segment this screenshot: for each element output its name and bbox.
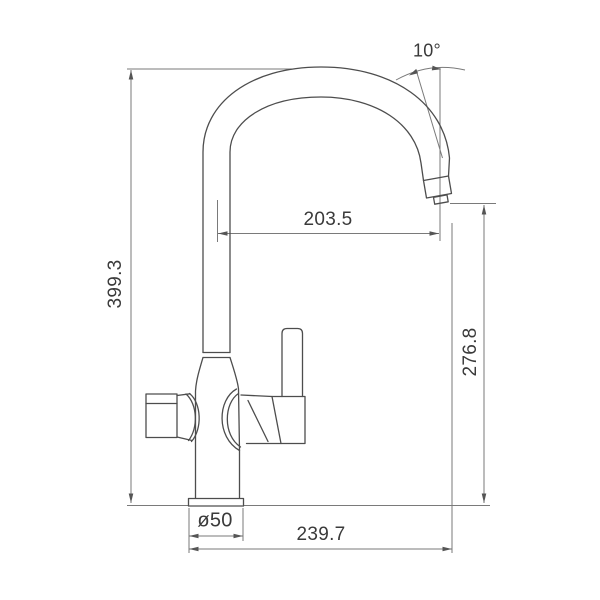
pipe-joint-band [203, 353, 230, 358]
dimension-arrowheads [129, 66, 487, 552]
faucet-outline [146, 67, 452, 506]
lever-handle [282, 329, 303, 397]
total-height-dimension-label: 399.3 [105, 259, 127, 308]
base-flange [189, 499, 244, 507]
handle-base [272, 397, 305, 444]
valve-boss-arc-outer [222, 389, 239, 451]
valve-top-line [241, 395, 272, 397]
filter-knob [146, 394, 177, 438]
spout-reach-dimension-label: 203.5 [303, 209, 352, 231]
knob-boss-arc-inner [186, 394, 195, 441]
angle-tilted-axis [417, 73, 443, 158]
base-diameter-dimension-label: ø50 [197, 510, 232, 533]
valve-slant-line [248, 401, 268, 442]
spout-height-dimension-label: 276.8 [460, 327, 482, 376]
angle-dimension-label: 10° [413, 41, 441, 62]
dimension-lines [127, 67, 496, 553]
total-projection-dimension-label: 239.7 [296, 524, 345, 546]
technical-drawing-canvas: 10° 203.5 399.3 276.8 ø50 239.7 [0, 0, 600, 600]
body-left-edge [196, 358, 204, 499]
aerator-nozzle [434, 195, 449, 204]
faucet-dimension-drawing [0, 0, 600, 600]
angle-arc [396, 67, 465, 80]
body-right-edge [230, 358, 240, 499]
